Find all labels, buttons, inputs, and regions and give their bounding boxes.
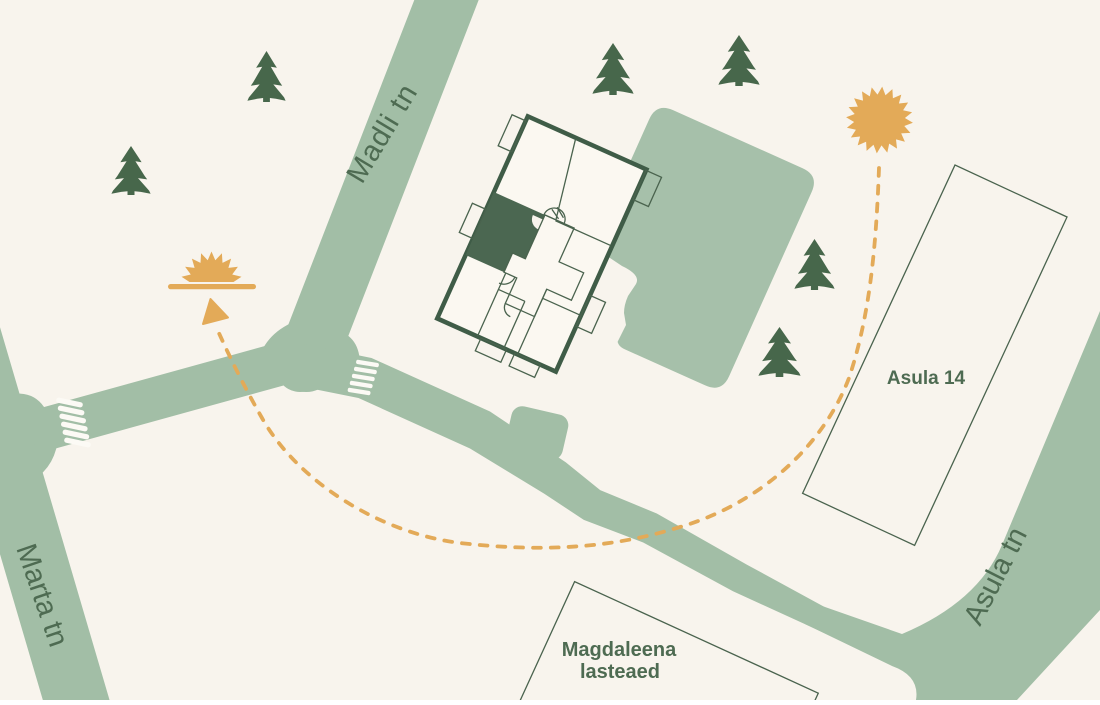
svg-text:lasteaed: lasteaed — [580, 661, 660, 683]
svg-text:Magdaleena: Magdaleena — [562, 639, 677, 661]
svg-text:Asula 14: Asula 14 — [887, 368, 966, 389]
